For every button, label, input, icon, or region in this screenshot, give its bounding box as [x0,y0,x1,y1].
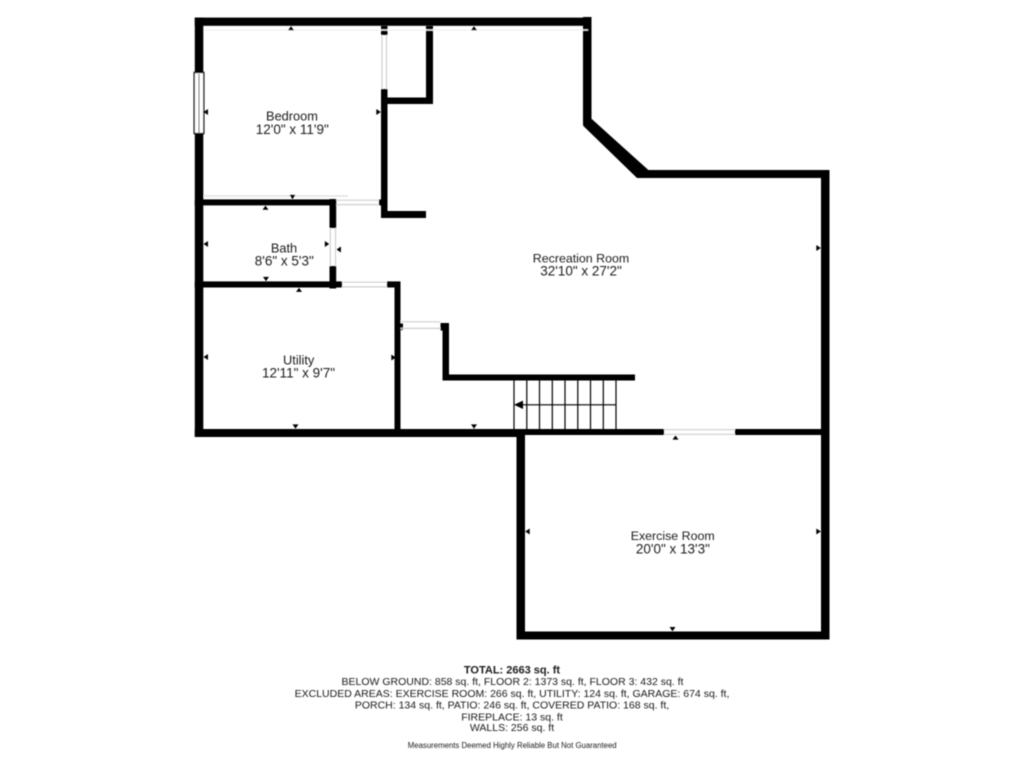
svg-text:EXCLUDED AREAS: EXERCISE ROOM:: EXCLUDED AREAS: EXERCISE ROOM: 266 sq. f… [295,688,730,700]
svg-text:BELOW GROUND: 858 sq. ft, FLOO: BELOW GROUND: 858 sq. ft, FLOOR 2: 1373 … [342,676,684,688]
svg-text:PORCH: 134 sq. ft, PATIO: 246: PORCH: 134 sq. ft, PATIO: 246 sq. ft, CO… [355,700,669,712]
svg-text:20'0" x 13'3": 20'0" x 13'3" [636,541,710,556]
svg-text:12'11" x 9'7": 12'11" x 9'7" [262,366,335,381]
svg-text:8'6" x 5'3": 8'6" x 5'3" [255,253,314,268]
svg-text:12'0" x 11'9": 12'0" x 11'9" [256,122,329,137]
svg-text:WALLS: 256 sq. ft: WALLS: 256 sq. ft [470,722,554,734]
svg-text:TOTAL: 2663 sq. ft: TOTAL: 2663 sq. ft [464,665,561,677]
svg-text:Measurements Deemed Highly Rel: Measurements Deemed Highly Reliable But … [408,741,617,750]
svg-text:32'10" x 27'2": 32'10" x 27'2" [540,263,622,278]
